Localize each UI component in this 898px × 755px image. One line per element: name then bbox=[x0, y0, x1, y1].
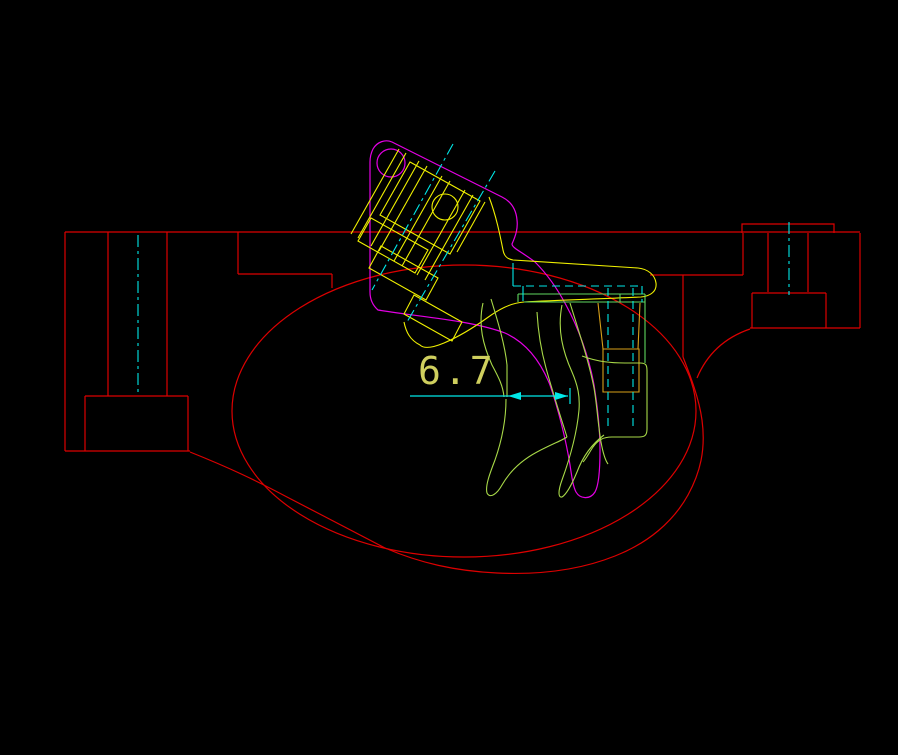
receiver-outline bbox=[65, 224, 860, 573]
dimension-text: 6.7 bbox=[418, 349, 496, 393]
trigger-green bbox=[481, 299, 647, 497]
cad-drawing-view: 6.7 bbox=[0, 0, 898, 755]
cad-canvas: 6.7 bbox=[0, 0, 898, 755]
sear-pin bbox=[598, 303, 640, 392]
trigger-bar bbox=[518, 294, 645, 363]
hidden-lines bbox=[513, 286, 642, 430]
hammer-assembly bbox=[351, 149, 656, 347]
